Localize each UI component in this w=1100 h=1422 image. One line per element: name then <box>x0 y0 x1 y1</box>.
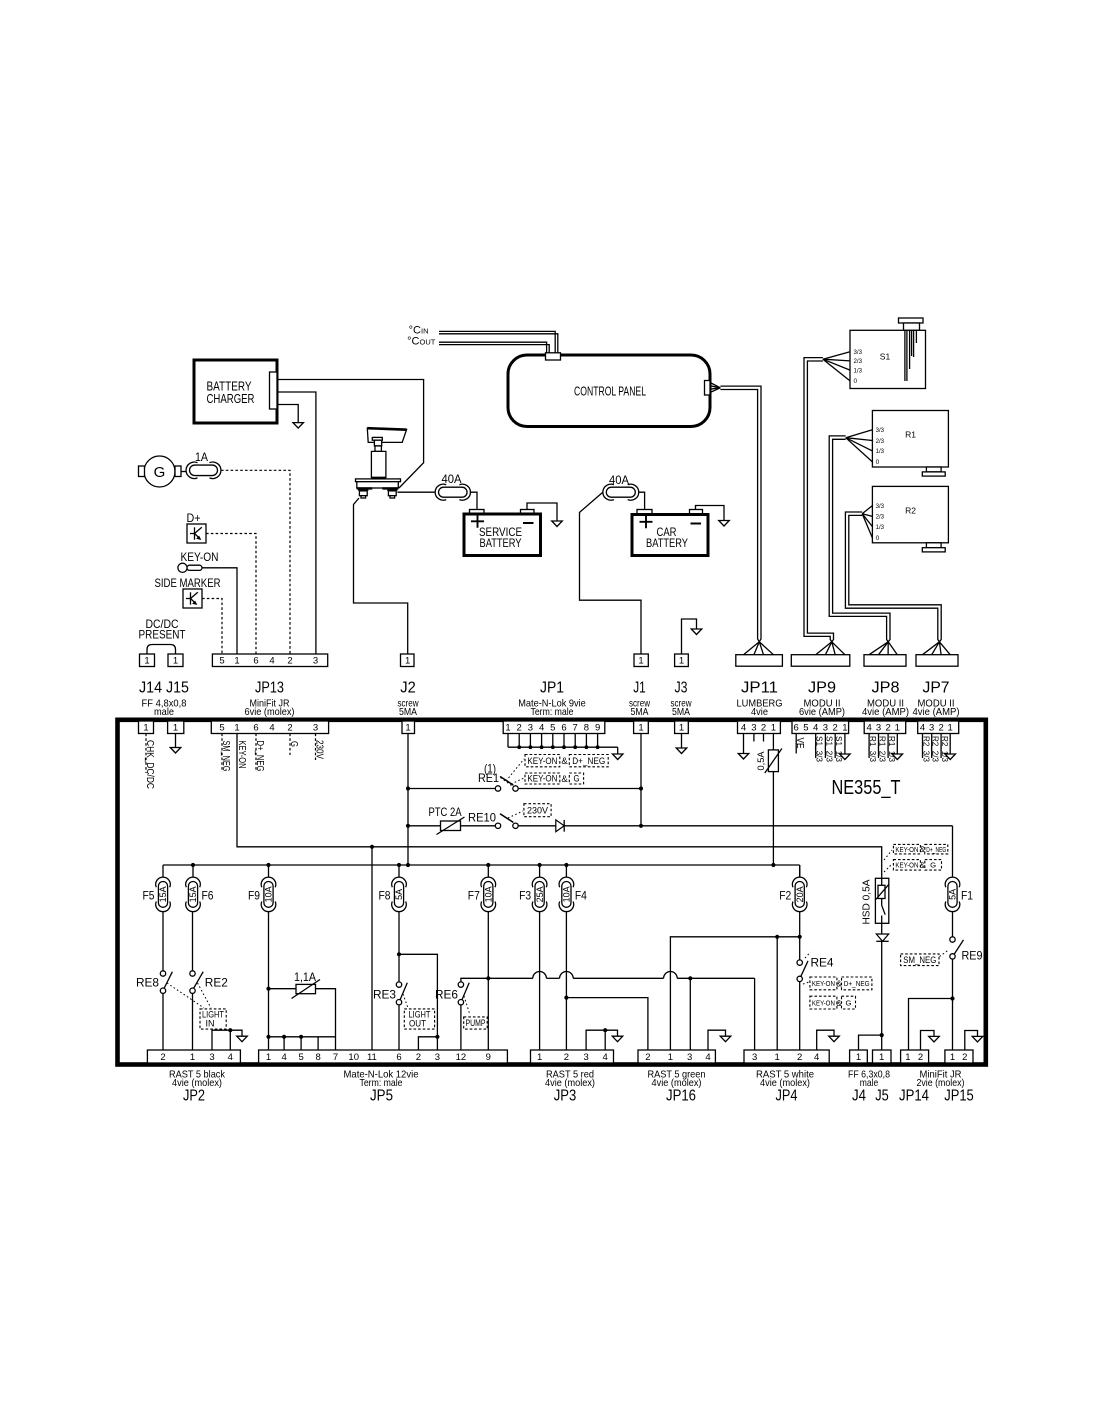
svg-text:R2_3/3: R2_3/3 <box>922 736 932 762</box>
svg-text:10A: 10A <box>484 886 494 902</box>
svg-text:4: 4 <box>269 655 274 666</box>
svg-text:9: 9 <box>486 1052 491 1063</box>
svg-text:3/3: 3/3 <box>876 427 885 434</box>
svg-text:°C: °C <box>407 336 419 348</box>
svg-text:KEY-ON: KEY-ON <box>181 550 219 564</box>
svg-text:11: 11 <box>367 1052 377 1063</box>
svg-text:S1_3/3: S1_3/3 <box>815 736 825 762</box>
svg-text:2: 2 <box>517 722 522 733</box>
svg-text:D+_NEG: D+_NEG <box>926 845 946 854</box>
svg-text:PRESENT: PRESENT <box>139 628 187 642</box>
svg-text:JP7: JP7 <box>923 680 950 697</box>
svg-text:4: 4 <box>813 722 818 733</box>
svg-text:1: 1 <box>143 722 148 733</box>
svg-text:1: 1 <box>668 1052 673 1063</box>
svg-text:RE2: RE2 <box>205 976 228 990</box>
svg-text:1: 1 <box>879 1052 884 1063</box>
svg-text:JP1: JP1 <box>540 680 564 697</box>
svg-text:D+_NEG: D+_NEG <box>572 756 605 766</box>
svg-text:2: 2 <box>938 722 943 733</box>
svg-text:25A: 25A <box>535 886 545 902</box>
svg-text:F6: F6 <box>202 889 214 903</box>
svg-text:20A: 20A <box>795 886 805 902</box>
svg-text:7: 7 <box>573 722 578 733</box>
svg-text:R2_2/3: R2_2/3 <box>931 736 941 762</box>
svg-text:1: 1 <box>144 655 149 666</box>
svg-text:CHK_DC/DC: CHK_DC/DC <box>144 740 155 789</box>
svg-text:Term: male: Term: male <box>531 706 574 718</box>
svg-text:JP16: JP16 <box>666 1088 696 1105</box>
svg-text:IN: IN <box>206 1018 215 1028</box>
svg-text:2: 2 <box>761 722 766 733</box>
svg-text:0: 0 <box>876 535 880 542</box>
svg-text:5MA: 5MA <box>399 706 417 718</box>
svg-text:3: 3 <box>583 1052 588 1063</box>
svg-text:F8: F8 <box>379 889 391 903</box>
svg-text:6: 6 <box>253 722 258 733</box>
svg-text:G: G <box>288 741 299 747</box>
svg-text:1: 1 <box>771 722 776 733</box>
svg-text:5MA: 5MA <box>631 706 649 718</box>
svg-text:2/3: 2/3 <box>876 514 885 521</box>
svg-text:J1: J1 <box>633 680 646 697</box>
svg-text:5A: 5A <box>948 889 958 900</box>
svg-text:R1_2/3: R1_2/3 <box>878 736 888 762</box>
svg-text:RE8: RE8 <box>136 976 159 990</box>
svg-text:F3: F3 <box>519 889 531 903</box>
svg-text:6: 6 <box>396 1052 401 1063</box>
svg-text:0: 0 <box>876 459 880 466</box>
svg-text:3: 3 <box>876 722 881 733</box>
svg-text:4: 4 <box>269 722 274 733</box>
svg-text:3: 3 <box>435 1052 440 1063</box>
svg-text:KEY-ON: KEY-ON <box>812 998 835 1007</box>
svg-text:4: 4 <box>603 1052 608 1063</box>
svg-text:G: G <box>930 861 936 870</box>
svg-text:4: 4 <box>814 1052 819 1063</box>
svg-text:S1_2/3: S1_2/3 <box>824 736 834 762</box>
svg-text:RE1: RE1 <box>478 771 499 785</box>
svg-text:2/3: 2/3 <box>876 438 885 445</box>
svg-text:JP14: JP14 <box>899 1088 929 1105</box>
svg-text:2: 2 <box>160 1052 165 1063</box>
svg-text:1: 1 <box>173 722 178 733</box>
svg-text:5: 5 <box>219 722 224 733</box>
svg-text:CONTROL PANEL: CONTROL PANEL <box>574 384 646 399</box>
svg-text:OUT: OUT <box>409 1018 426 1028</box>
svg-text:4vie: 4vie <box>751 706 768 718</box>
svg-text:KEY-ON: KEY-ON <box>895 845 918 854</box>
svg-text:1: 1 <box>173 655 178 666</box>
svg-text:JP3: JP3 <box>554 1088 577 1105</box>
svg-text:S1_1/3: S1_1/3 <box>834 736 844 762</box>
svg-text:D+: D+ <box>187 511 201 525</box>
svg-text:J4: J4 <box>852 1088 866 1105</box>
svg-text:SM_NEG: SM_NEG <box>903 955 936 965</box>
svg-text:4: 4 <box>705 1052 710 1063</box>
svg-text:SIDE MARKER: SIDE MARKER <box>155 576 221 590</box>
svg-text:1: 1 <box>405 655 410 666</box>
svg-text:2: 2 <box>833 722 838 733</box>
svg-text:4vie (AMP): 4vie (AMP) <box>862 706 909 718</box>
svg-text:&: & <box>561 756 568 767</box>
svg-text:F5: F5 <box>143 889 155 903</box>
svg-text:3: 3 <box>752 1052 757 1063</box>
svg-text:F4: F4 <box>575 889 587 903</box>
svg-text:R1_3/3: R1_3/3 <box>868 736 878 762</box>
svg-text:2: 2 <box>885 722 890 733</box>
svg-text:2: 2 <box>962 1052 967 1063</box>
svg-text:JP9: JP9 <box>808 680 836 697</box>
svg-text:JP13: JP13 <box>255 680 284 697</box>
svg-text:2: 2 <box>416 1052 421 1063</box>
svg-text:1: 1 <box>905 1052 910 1063</box>
svg-text:4: 4 <box>539 722 544 733</box>
svg-text:1/3: 1/3 <box>876 448 885 455</box>
svg-text:J5: J5 <box>875 1088 889 1105</box>
svg-text:10A: 10A <box>264 886 274 902</box>
svg-text:S1: S1 <box>880 352 891 362</box>
svg-text:1: 1 <box>405 722 410 733</box>
svg-text:RE6: RE6 <box>435 988 458 1002</box>
svg-text:1: 1 <box>234 722 239 733</box>
svg-text:2/3: 2/3 <box>854 358 863 365</box>
svg-text:6vie (molex): 6vie (molex) <box>245 706 295 718</box>
svg-text:R2: R2 <box>905 506 916 516</box>
svg-text:4: 4 <box>228 1052 233 1063</box>
svg-text:RE10: RE10 <box>468 811 496 825</box>
svg-text:PUMP: PUMP <box>466 1018 486 1028</box>
svg-text:3: 3 <box>823 722 828 733</box>
svg-text:F9: F9 <box>248 889 260 903</box>
svg-text:KEY-ON: KEY-ON <box>812 979 835 988</box>
svg-text:G: G <box>573 774 579 784</box>
svg-text:1: 1 <box>948 722 953 733</box>
svg-text:J2: J2 <box>400 680 416 697</box>
svg-text:8: 8 <box>584 722 589 733</box>
svg-text:HSD 0,5A: HSD 0,5A <box>862 879 873 924</box>
svg-text:2: 2 <box>287 722 292 733</box>
svg-text:PTC 2A: PTC 2A <box>429 805 462 819</box>
svg-text:3: 3 <box>528 722 533 733</box>
svg-text:6: 6 <box>561 722 566 733</box>
svg-text:1: 1 <box>266 1052 271 1063</box>
svg-text:1,1A: 1,1A <box>294 970 316 984</box>
svg-text:JP15: JP15 <box>944 1088 974 1105</box>
svg-text:KEY-ON: KEY-ON <box>895 861 918 870</box>
svg-text:6: 6 <box>794 722 799 733</box>
svg-text:SM_NEG: SM_NEG <box>220 741 231 772</box>
svg-text:2: 2 <box>797 1052 802 1063</box>
svg-text:15A: 15A <box>188 886 198 902</box>
svg-text:5A: 5A <box>394 889 404 900</box>
svg-text:1: 1 <box>638 722 643 733</box>
svg-text:230V: 230V <box>313 740 324 759</box>
svg-text:3: 3 <box>209 1052 214 1063</box>
svg-text:1: 1 <box>537 1052 542 1063</box>
svg-text:1/3: 1/3 <box>876 524 885 531</box>
svg-text:7: 7 <box>333 1052 338 1063</box>
svg-text:CHARGER: CHARGER <box>207 391 255 406</box>
svg-text:J3: J3 <box>675 680 688 697</box>
svg-text:4: 4 <box>920 722 925 733</box>
svg-text:5: 5 <box>550 722 555 733</box>
svg-text:5: 5 <box>803 722 808 733</box>
svg-text:KEY-ON: KEY-ON <box>527 756 557 766</box>
svg-text:5: 5 <box>219 655 224 666</box>
svg-text:1: 1 <box>679 655 684 666</box>
svg-text:G: G <box>846 998 852 1007</box>
svg-text:D+_NEG: D+_NEG <box>844 979 870 988</box>
svg-text:1: 1 <box>190 1052 195 1063</box>
svg-text:VE: VE <box>794 738 805 749</box>
svg-text:1: 1 <box>505 722 510 733</box>
svg-text:3: 3 <box>313 722 318 733</box>
svg-text:JP5: JP5 <box>370 1088 393 1105</box>
svg-text:4vie (AMP): 4vie (AMP) <box>913 706 960 718</box>
svg-text:0: 0 <box>854 378 858 385</box>
svg-text:3: 3 <box>751 722 756 733</box>
svg-text:230V: 230V <box>527 805 548 815</box>
svg-text:RE4: RE4 <box>811 956 834 970</box>
svg-text:F1: F1 <box>961 889 973 903</box>
svg-text:3/3: 3/3 <box>876 503 885 510</box>
svg-text:0,5A: 0,5A <box>756 752 766 771</box>
svg-text:J14 J15: J14 J15 <box>139 680 189 697</box>
svg-text:1: 1 <box>856 1052 861 1063</box>
svg-text:2: 2 <box>564 1052 569 1063</box>
svg-text:12: 12 <box>456 1052 467 1063</box>
svg-text:8: 8 <box>315 1052 320 1063</box>
svg-text:4: 4 <box>281 1052 286 1063</box>
svg-text:male: male <box>154 706 174 718</box>
svg-text:4: 4 <box>741 722 746 733</box>
svg-text:KEY-ON: KEY-ON <box>527 774 557 784</box>
svg-text:4: 4 <box>866 722 871 733</box>
svg-text:1: 1 <box>842 722 847 733</box>
svg-text:1: 1 <box>775 1052 780 1063</box>
svg-text:D+_NEG: D+_NEG <box>254 741 265 772</box>
svg-text:2: 2 <box>645 1052 650 1063</box>
svg-text:2: 2 <box>918 1052 923 1063</box>
svg-text:JP4: JP4 <box>776 1088 798 1105</box>
svg-text:RE9: RE9 <box>962 949 983 963</box>
svg-text:9: 9 <box>595 722 600 733</box>
svg-text:3/3: 3/3 <box>854 349 863 356</box>
svg-text:1: 1 <box>950 1052 955 1063</box>
svg-text:BATTERY: BATTERY <box>480 538 522 550</box>
svg-text:6: 6 <box>253 655 258 666</box>
svg-text:IN: IN <box>421 327 429 336</box>
svg-text:10: 10 <box>348 1052 359 1063</box>
svg-text:5MA: 5MA <box>672 706 690 718</box>
svg-text:JP2: JP2 <box>183 1088 205 1105</box>
svg-text:OUT: OUT <box>420 338 436 347</box>
svg-text:3: 3 <box>929 722 934 733</box>
svg-text:&: & <box>561 774 568 785</box>
svg-text:1/3: 1/3 <box>854 367 863 374</box>
svg-text:3: 3 <box>313 655 318 666</box>
svg-text:1: 1 <box>895 722 900 733</box>
svg-text:1: 1 <box>679 722 684 733</box>
svg-text:3: 3 <box>687 1052 692 1063</box>
svg-text:F2: F2 <box>779 889 791 903</box>
svg-text:6vie (AMP): 6vie (AMP) <box>799 706 845 718</box>
svg-text:NE355_T: NE355_T <box>832 777 901 799</box>
svg-text:F7: F7 <box>468 889 480 903</box>
svg-text:2: 2 <box>287 655 292 666</box>
svg-text:JP8: JP8 <box>872 680 900 697</box>
svg-text:JP11: JP11 <box>741 680 778 697</box>
svg-text:BATTERY: BATTERY <box>646 538 688 550</box>
svg-text:10A: 10A <box>562 886 572 902</box>
svg-text:R1: R1 <box>905 430 916 440</box>
svg-text:1: 1 <box>638 655 643 666</box>
svg-text:15A: 15A <box>158 886 168 902</box>
svg-text:1: 1 <box>234 655 239 666</box>
svg-text:G: G <box>154 464 166 481</box>
svg-text:RE3: RE3 <box>373 988 396 1002</box>
svg-text:5: 5 <box>298 1052 303 1063</box>
